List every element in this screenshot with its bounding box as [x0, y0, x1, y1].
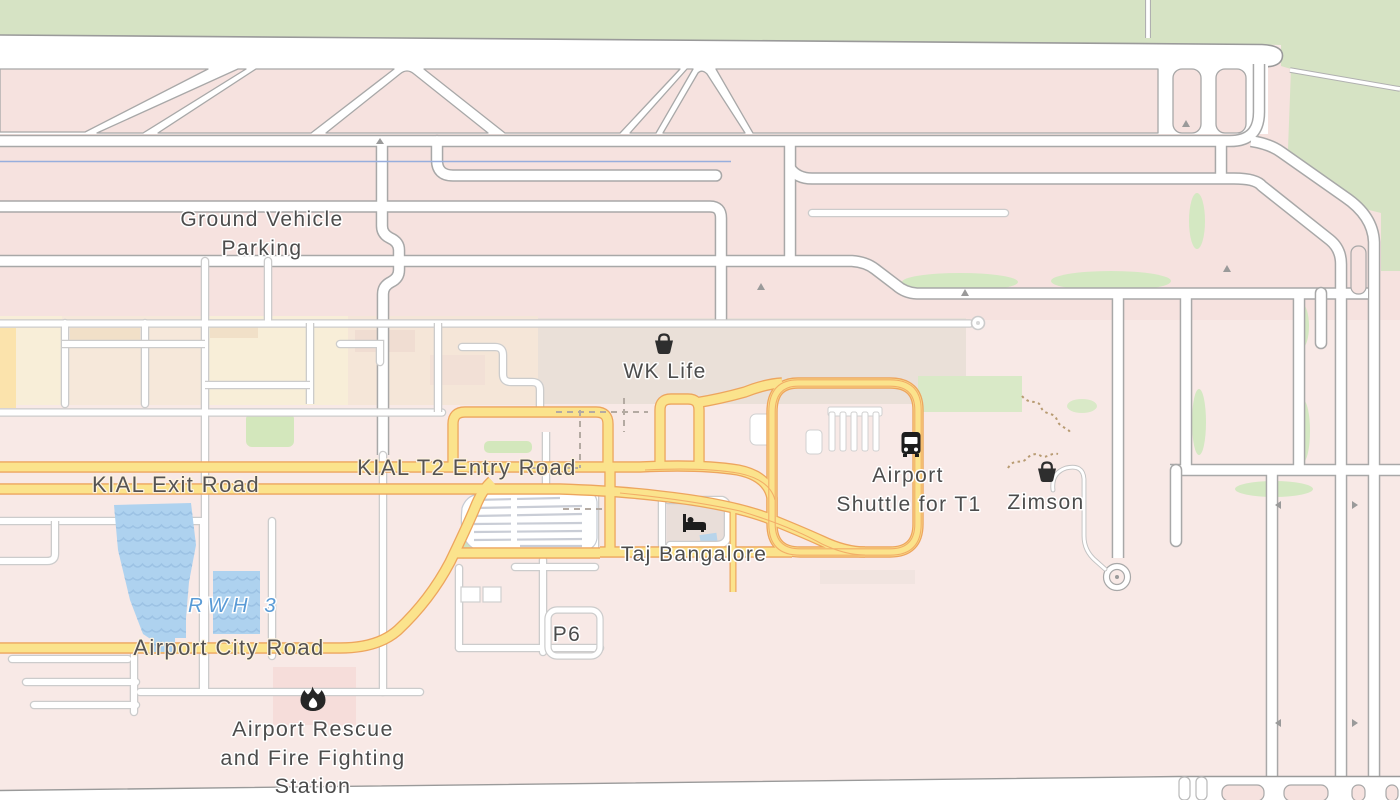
svg-text:Airport Rescue: Airport Rescue — [232, 717, 394, 741]
svg-text:Parking: Parking — [221, 237, 302, 260]
svg-text:KIAL T2 Entry Road: KIAL T2 Entry Road — [357, 455, 577, 480]
svg-text:Taj Bangalore: Taj Bangalore — [621, 543, 768, 566]
svg-text:Station: Station — [275, 774, 352, 798]
svg-text:Airport City Road: Airport City Road — [133, 635, 324, 660]
svg-text:Airport: Airport — [872, 464, 944, 487]
svg-text:WK Life: WK Life — [623, 360, 706, 383]
svg-text:and Fire Fighting: and Fire Fighting — [220, 746, 405, 770]
svg-text:P6: P6 — [553, 623, 582, 646]
svg-text:Zimson: Zimson — [1007, 491, 1084, 514]
svg-text:KIAL Exit Road: KIAL Exit Road — [92, 472, 260, 497]
svg-text:Shuttle for T1: Shuttle for T1 — [836, 493, 981, 516]
svg-text:Ground Vehicle: Ground Vehicle — [180, 208, 343, 231]
svg-text:RWH 3: RWH 3 — [188, 594, 281, 617]
